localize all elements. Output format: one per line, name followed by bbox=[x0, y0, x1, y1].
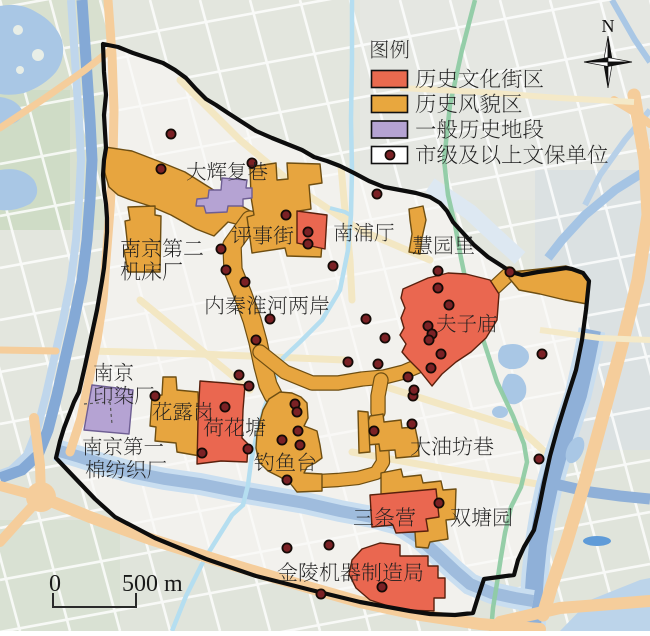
svg-text:0: 0 bbox=[49, 571, 61, 597]
svg-text:N: N bbox=[602, 16, 615, 36]
svg-text:500 m: 500 m bbox=[122, 571, 183, 597]
